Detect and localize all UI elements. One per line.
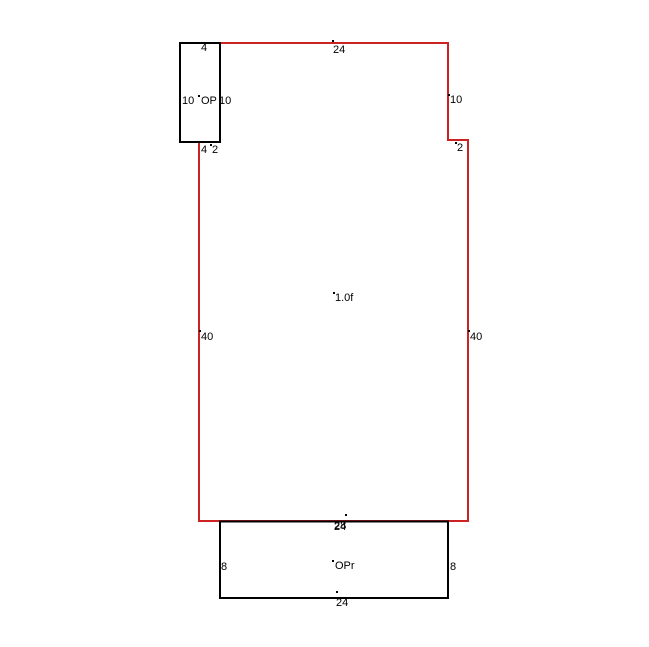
anchor-dot-main-bottom (345, 514, 347, 516)
dim-rear-porch-bottom: 24 (336, 598, 348, 609)
sketch-canvas: 24 4 10 OP 10 4 2 10 2 40 40 1.0f 28 24 … (0, 0, 649, 647)
dim-op-bottom-offset: 2 (212, 145, 218, 156)
main-area-outline (199, 43, 468, 521)
dim-rear-porch-top: 24 (334, 522, 346, 533)
anchor-dot-porch-bottom (336, 591, 338, 593)
rear-porch-label: OPr (335, 561, 355, 572)
dim-op-left: 10 (182, 96, 194, 107)
dim-op-right: 10 (219, 96, 231, 107)
dim-rear-porch-right: 8 (450, 562, 456, 573)
dim-op-bottom: 4 (201, 145, 207, 156)
anchor-dot-opr-label (332, 560, 334, 562)
open-porch-label: OP (201, 96, 217, 107)
sketch-drawing (0, 0, 649, 647)
dim-rear-porch-left: 8 (221, 562, 227, 573)
dim-op-top: 4 (201, 43, 207, 54)
dim-main-right-notch: 2 (457, 143, 463, 154)
open-porch-outline (180, 43, 220, 142)
anchor-dot-main-top (332, 40, 334, 42)
main-area-label: 1.0f (335, 293, 353, 304)
dim-main-right-upper: 10 (450, 95, 462, 106)
anchor-dot-op-label (198, 95, 200, 97)
dim-main-top: 24 (333, 45, 345, 56)
dim-main-left: 40 (201, 332, 213, 343)
dim-main-right-lower: 40 (470, 332, 482, 343)
